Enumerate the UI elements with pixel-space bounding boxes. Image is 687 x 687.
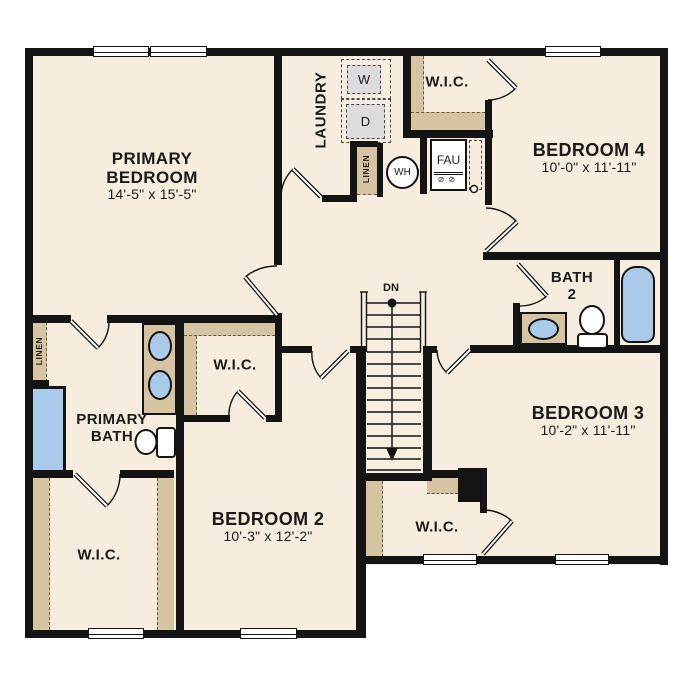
- linen-left-label: LINEN: [35, 337, 45, 366]
- toilet-bowl-icon: [580, 306, 604, 334]
- room-name: PRIMARY: [76, 412, 147, 429]
- room-name: BATH: [76, 429, 147, 446]
- toilet-tank-icon: [157, 428, 175, 457]
- toilet-tank-icon: [578, 334, 607, 348]
- door-leaves: [71, 60, 547, 554]
- bedroom2-label: BEDROOM 2 10'-3" x 12'-2": [212, 509, 325, 545]
- wic-primary-label: W.I.C.: [213, 358, 256, 375]
- room-dims: 10'-3" x 12'-2": [212, 529, 325, 545]
- wic-bedroom3-label: W.I.C.: [415, 520, 458, 537]
- room-name: PRIMARY: [106, 149, 198, 168]
- room-name: BEDROOM 2: [212, 509, 325, 529]
- bath2-label: BATH 2: [551, 270, 593, 304]
- room-dims: 14'-5" x 15'-5": [106, 187, 198, 203]
- bedroom4-label: BEDROOM 4 10'-0" x 11'-11": [533, 140, 646, 176]
- laundry-label: LAUNDRY: [314, 72, 331, 149]
- room-dims: 10'-0" x 11'-11": [533, 160, 646, 176]
- room-dims: 10'-2" x 11'-11": [532, 423, 645, 439]
- room-name: BEDROOM 4: [533, 140, 646, 160]
- linen-mid-label: LINEN: [362, 155, 372, 184]
- wic-left-label: W.I.C.: [77, 548, 120, 565]
- floor-plan: W D WH FAU ⊘⊘: [0, 0, 687, 687]
- stair-treads: [367, 303, 421, 470]
- primary-bath-label: PRIMARY BATH: [76, 412, 147, 446]
- room-number: 2: [551, 287, 593, 304]
- wic-bedroom4-label: W.I.C.: [425, 75, 468, 92]
- bedroom3-label: BEDROOM 3 10'-2" x 11'-11": [532, 403, 645, 439]
- doors-and-stairs-layer: [0, 0, 687, 687]
- fau-door-pivot-icon: [471, 186, 478, 193]
- primary-bedroom-label: PRIMARY BEDROOM 14'-5" x 15'-5": [106, 149, 198, 203]
- room-name: BEDROOM 3: [532, 403, 645, 423]
- stairs-down-label: DN: [383, 282, 399, 294]
- stairs: [360, 292, 427, 470]
- room-name: BEDROOM: [106, 168, 198, 187]
- room-name: BATH: [551, 270, 593, 287]
